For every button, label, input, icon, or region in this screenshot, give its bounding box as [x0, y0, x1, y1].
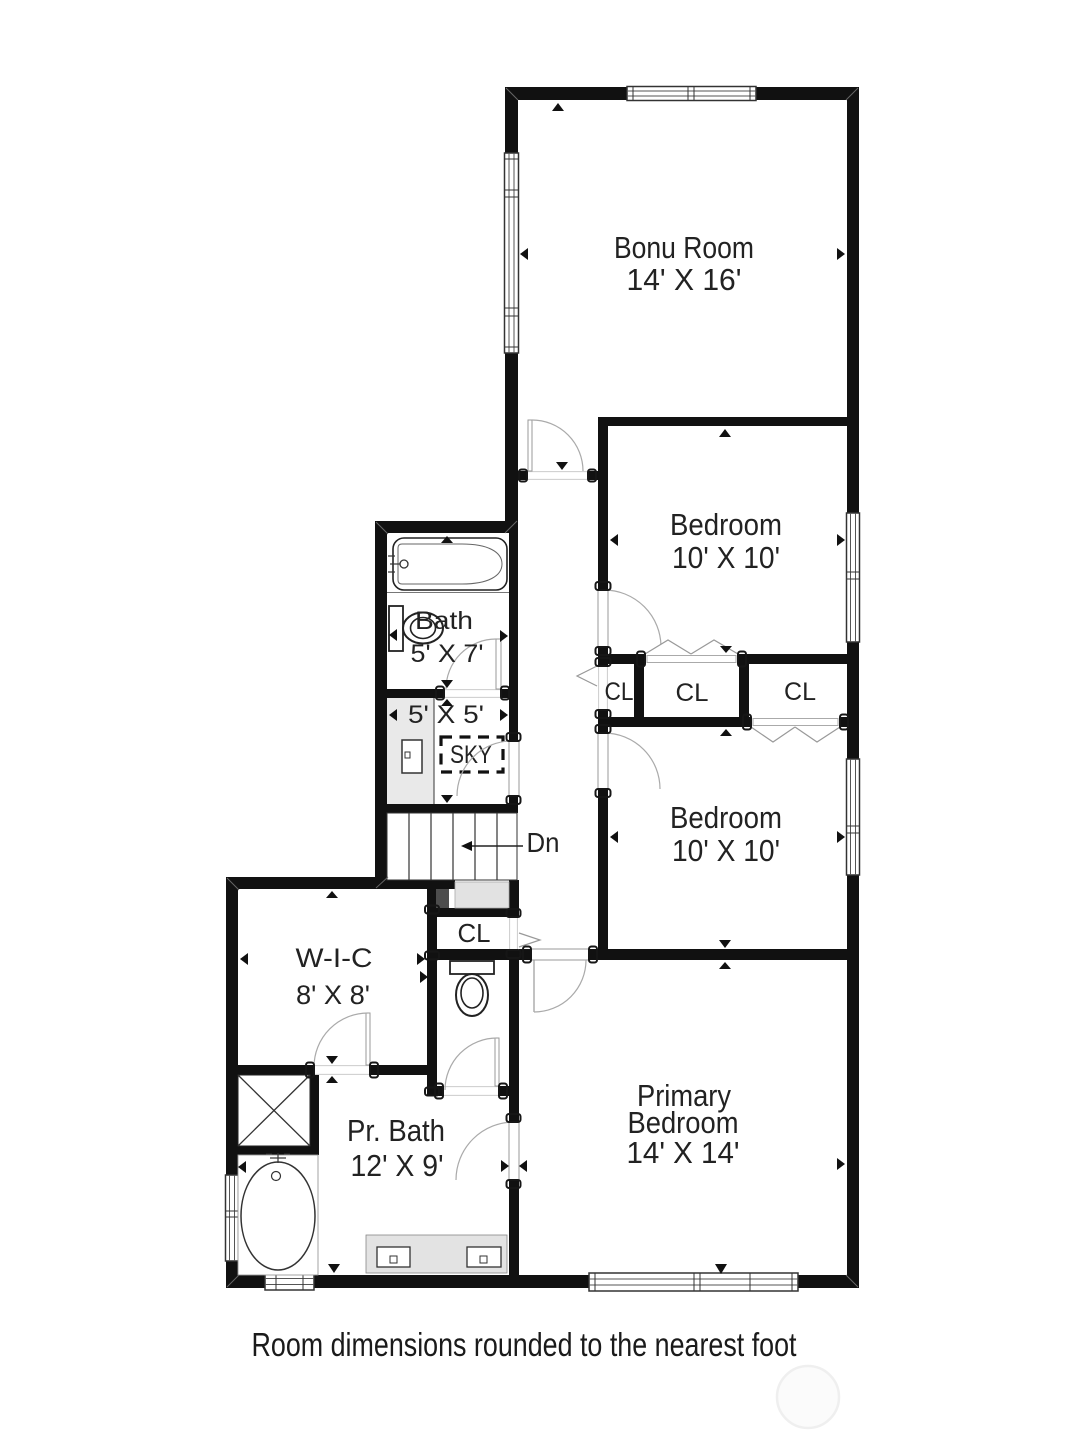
svg-text:5' X 7': 5' X 7' [411, 640, 484, 668]
svg-text:CL: CL [784, 678, 816, 706]
svg-text:Bedroom: Bedroom [670, 800, 782, 835]
svg-text:10' X 10': 10' X 10' [672, 833, 780, 868]
svg-text:W-I-C: W-I-C [296, 943, 373, 973]
svg-text:8' X 8': 8' X 8' [296, 980, 370, 1010]
svg-text:Bedroom: Bedroom [670, 507, 782, 542]
svg-text:14' X 14': 14' X 14' [627, 1135, 740, 1170]
svg-text:10' X 10': 10' X 10' [672, 540, 780, 575]
svg-text:Dn: Dn [527, 827, 560, 858]
svg-text:Room dimensions rounded to the: Room dimensions rounded to the nearest f… [252, 1326, 797, 1363]
svg-text:CL: CL [676, 679, 709, 707]
svg-text:SKY: SKY [450, 741, 492, 769]
svg-text:14' X 16': 14' X 16' [627, 262, 742, 297]
svg-text:CL: CL [605, 678, 634, 706]
svg-text:Bonu Room: Bonu Room [614, 230, 754, 265]
svg-text:12' X 9': 12' X 9' [351, 1148, 444, 1183]
svg-text:Pr. Bath: Pr. Bath [347, 1113, 445, 1148]
svg-text:Bath: Bath [415, 607, 473, 635]
svg-text:CL: CL [458, 918, 491, 948]
